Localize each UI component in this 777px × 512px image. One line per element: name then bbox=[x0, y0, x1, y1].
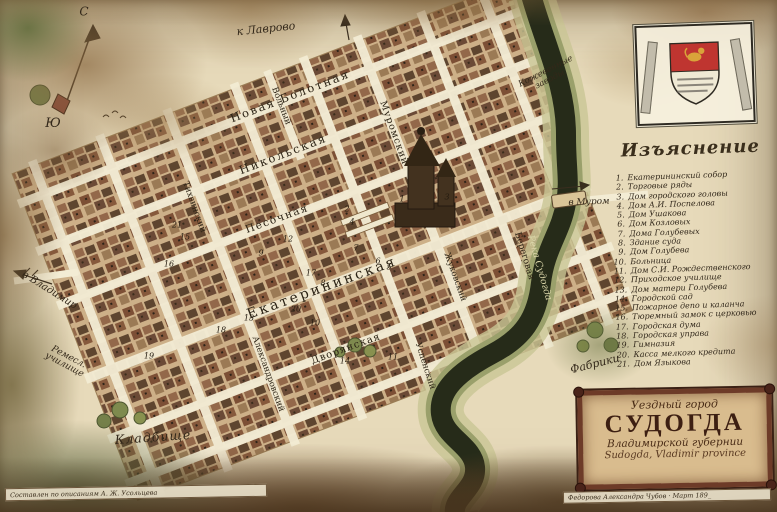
map-number: 2 bbox=[344, 205, 349, 214]
antique-city-map: С Ю Новая Болотная Никольская Песочная Е… bbox=[0, 0, 777, 512]
map-number: 15 bbox=[180, 233, 190, 242]
compass-rose bbox=[52, 25, 126, 118]
map-number: 1 bbox=[399, 195, 404, 204]
map-number: 14 bbox=[340, 357, 350, 366]
compass-south-label: Ю bbox=[45, 117, 61, 131]
map-number: 18 bbox=[216, 326, 226, 335]
map-number: 9 bbox=[258, 249, 263, 258]
map-number: 11 bbox=[388, 353, 398, 362]
map-number: 21 bbox=[172, 221, 182, 230]
map-number: 19 bbox=[144, 352, 154, 361]
map-number: 13 bbox=[244, 314, 254, 323]
map-number: 16 bbox=[164, 260, 174, 269]
map-number: 10 bbox=[310, 319, 320, 328]
legend: Изъяснение 1.Екатерининский собор 2.Торг… bbox=[608, 135, 777, 369]
map-number: 7 bbox=[353, 244, 358, 253]
legend-header: Изъяснение bbox=[608, 135, 773, 162]
title-cartouche: Уездный город СУДОГДА Владимирской губер… bbox=[577, 387, 773, 489]
map-number: 12 bbox=[283, 235, 293, 244]
map-number: 17 bbox=[306, 269, 316, 278]
shield-icon bbox=[664, 38, 726, 110]
cartouche-subtitle-latin: Sudogda, Vladimir province bbox=[583, 448, 767, 462]
map-number: 20 bbox=[291, 305, 301, 314]
map-number: 3 bbox=[444, 193, 449, 202]
map-number: 8 bbox=[320, 279, 325, 288]
cartouche-corner bbox=[573, 387, 584, 398]
map-number: 5 bbox=[386, 263, 391, 272]
map-number: 6 bbox=[375, 257, 380, 266]
ribbon-right bbox=[730, 38, 752, 111]
map-number: 4 bbox=[349, 218, 354, 227]
coat-of-arms bbox=[634, 22, 755, 126]
map-title: СУДОГДА bbox=[583, 409, 767, 438]
ribbon-left bbox=[640, 41, 657, 114]
place-label-murom: в Муром bbox=[568, 198, 609, 209]
compass-north-label: С bbox=[79, 6, 88, 19]
